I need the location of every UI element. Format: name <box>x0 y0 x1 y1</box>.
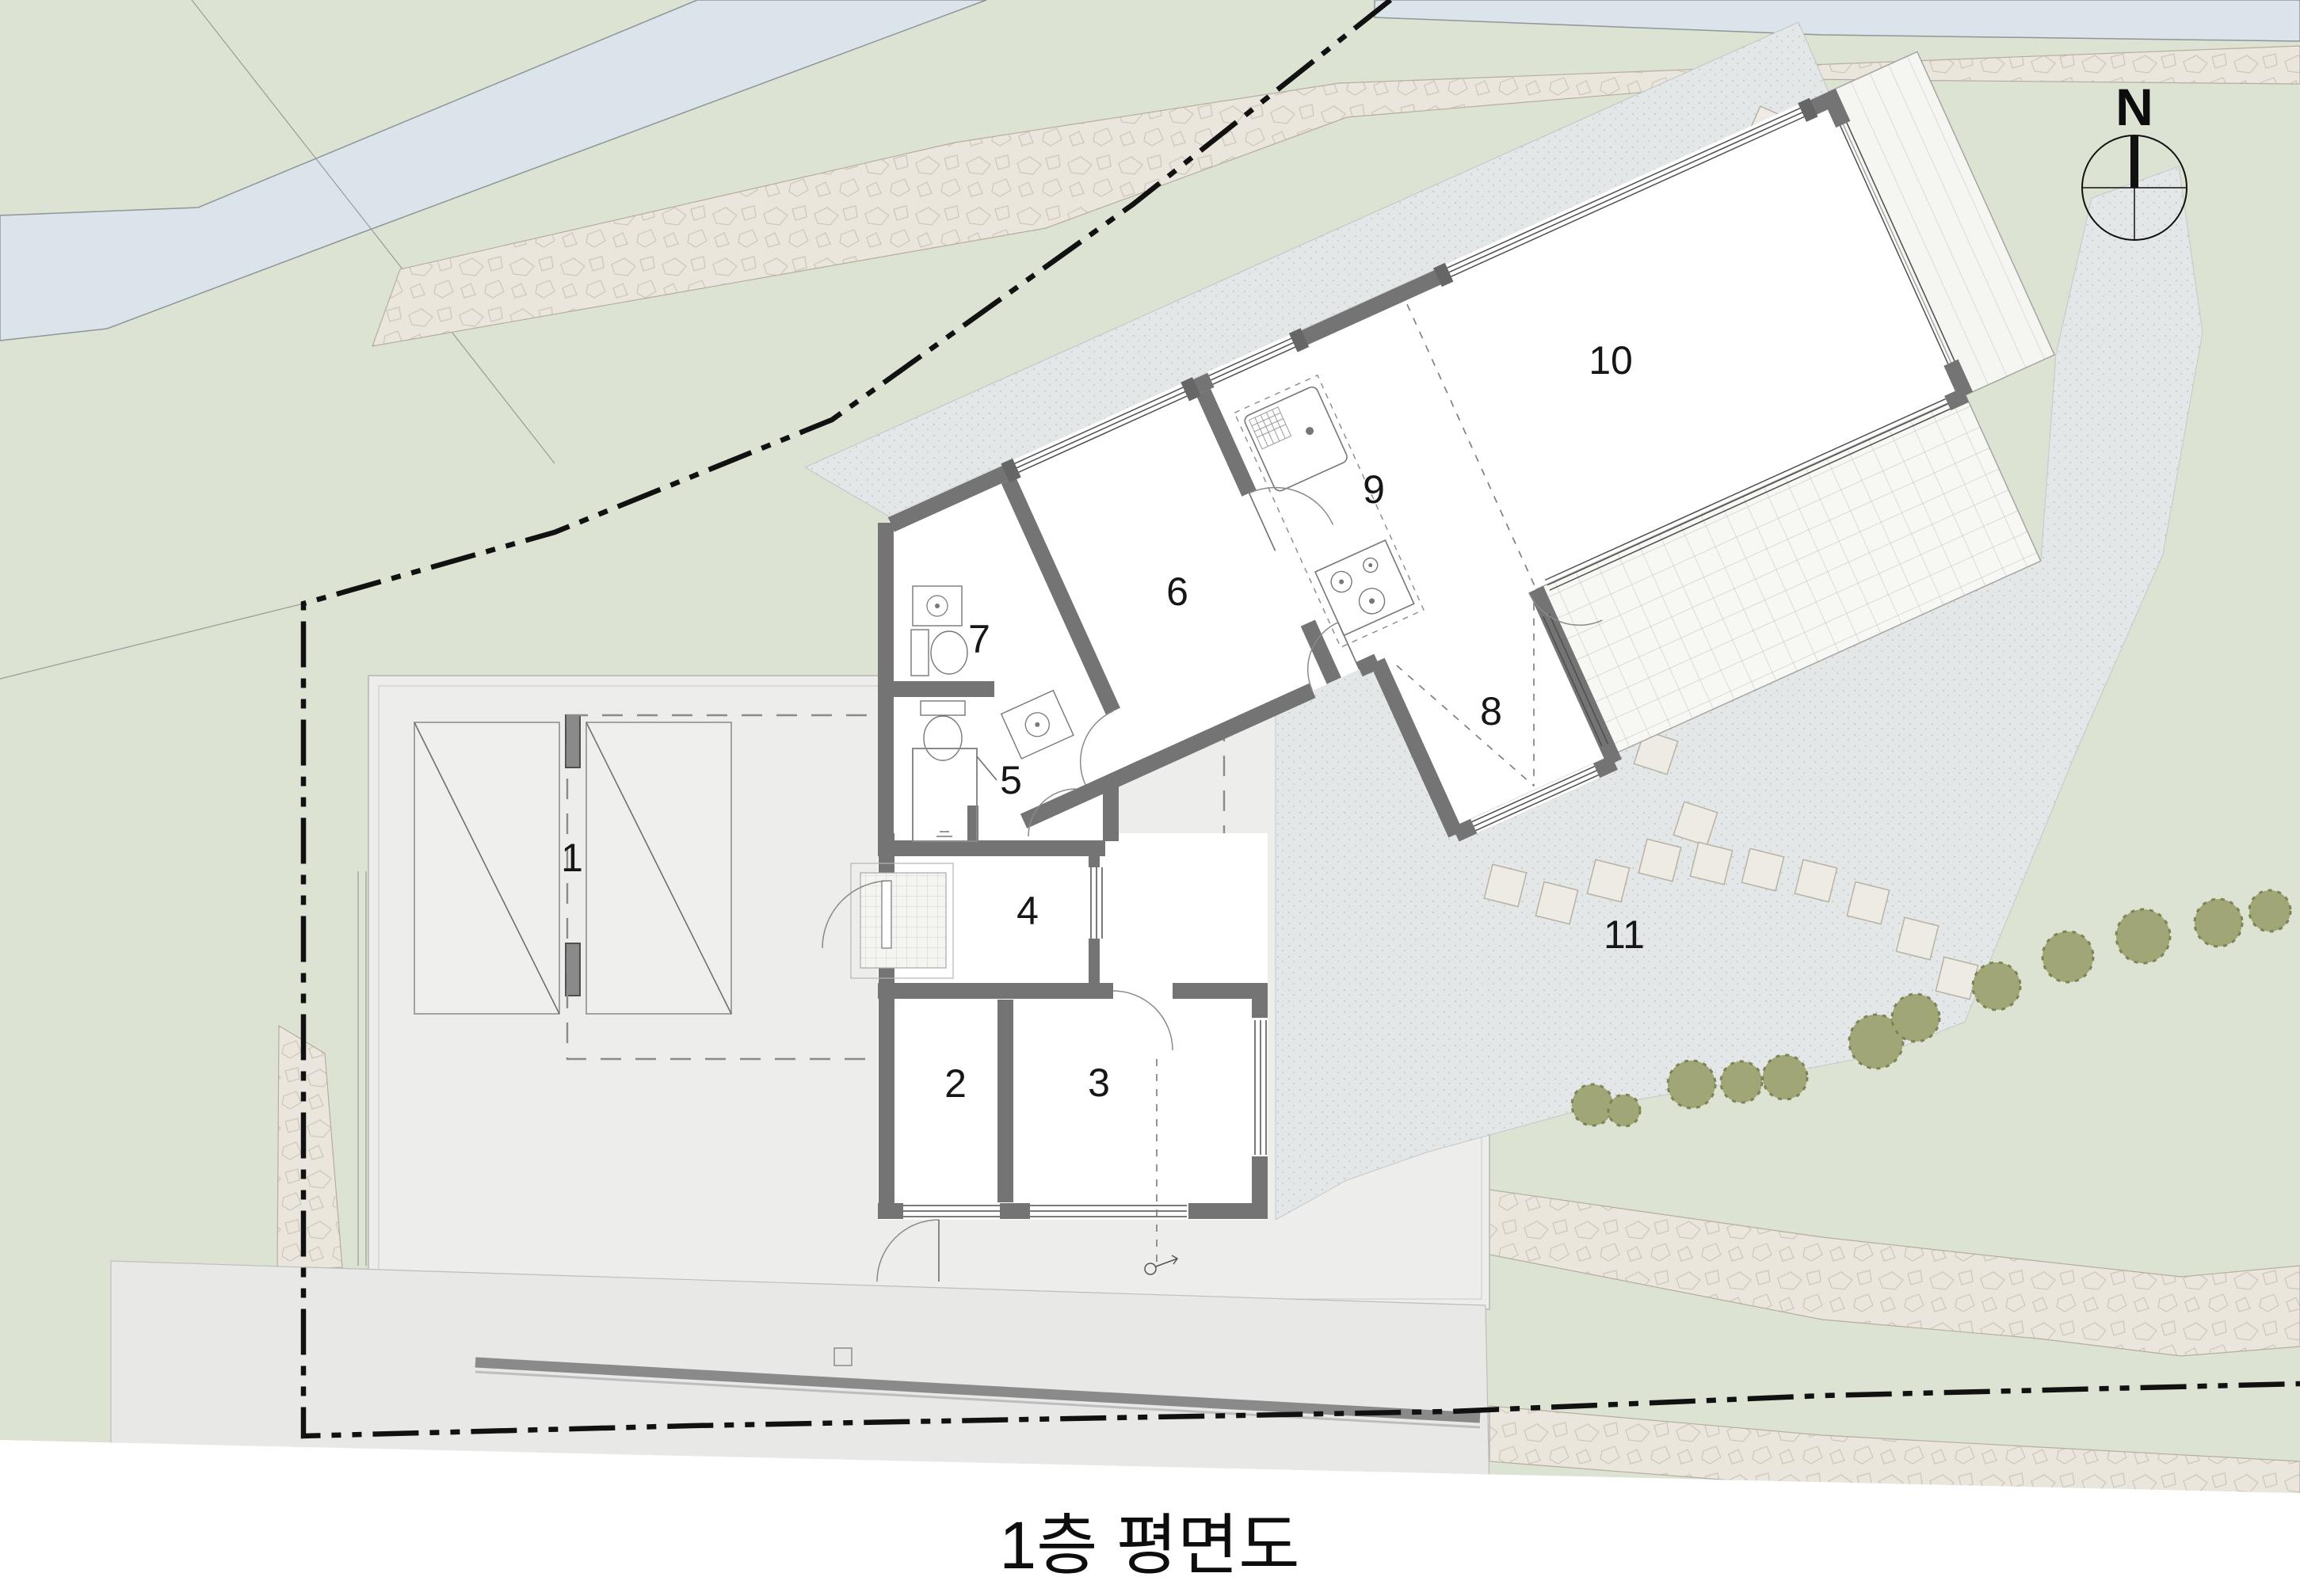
toilet-icon <box>921 701 965 715</box>
room-label-2: 2 <box>944 1061 967 1106</box>
entry-door <box>882 881 891 948</box>
toilet-icon <box>911 630 929 676</box>
room-label-6: 6 <box>1166 569 1188 614</box>
wall-se-stub <box>1947 395 1966 403</box>
room-label-7: 7 <box>968 617 990 661</box>
room-label-9: 9 <box>1363 467 1385 512</box>
floor-plan-page: 1 2 3 4 5 6 7 8 9 10 11 N 1층 평면도 <box>0 0 2300 1596</box>
room-label-4: 4 <box>1017 889 1039 933</box>
room-label-5: 5 <box>1000 758 1022 802</box>
room-label-8: 8 <box>1480 689 1502 733</box>
north-label: N <box>2115 78 2153 136</box>
room-label-10: 10 <box>1589 338 1633 383</box>
room-label-3: 3 <box>1088 1061 1110 1105</box>
drawing-title: 1층 평면도 <box>999 1508 1299 1583</box>
room-label-1: 1 <box>561 836 583 880</box>
room-label-11: 11 <box>1604 912 1645 957</box>
entry-porch-tiles <box>860 873 946 968</box>
site-plan-drawing: 1 2 3 4 5 6 7 8 9 10 11 N 1층 평면도 <box>0 0 2300 1596</box>
